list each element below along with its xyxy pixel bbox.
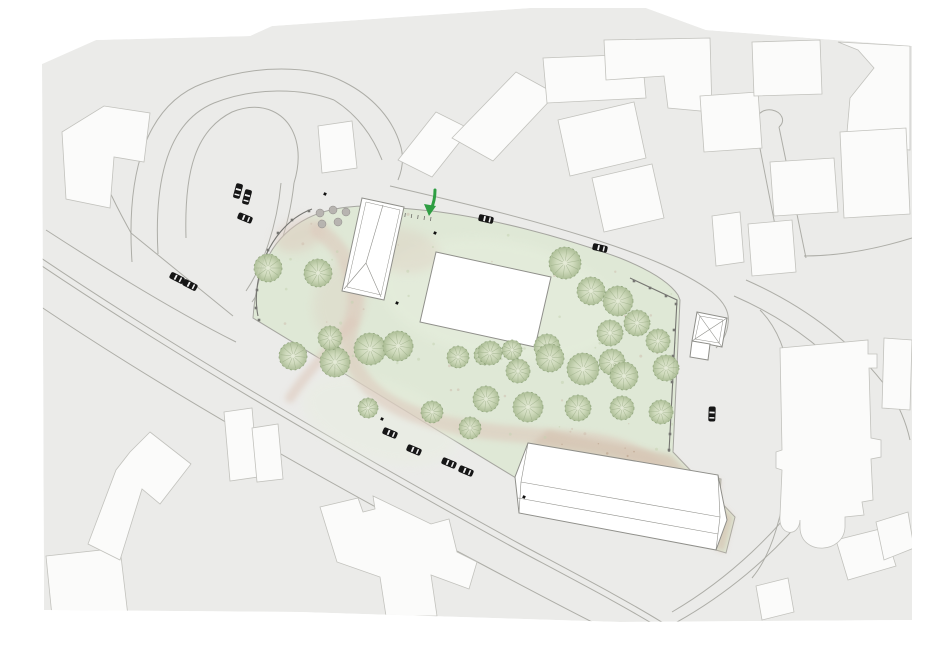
tr-slab-3 [752, 40, 822, 96]
tree-crown [358, 398, 378, 418]
fence-post [255, 307, 258, 310]
ground-speckle [509, 433, 512, 436]
tree [565, 395, 591, 421]
car-body [708, 406, 716, 421]
ground-speckle [450, 389, 452, 391]
tree-crown [478, 341, 502, 365]
pavilion-annex [690, 341, 710, 360]
ground-speckle [558, 316, 561, 319]
ground-speckle [285, 288, 288, 291]
tree [649, 400, 673, 424]
tree-crown [567, 353, 599, 385]
tree-crown [577, 277, 605, 305]
tree-crown [318, 326, 342, 350]
site-plan-drawing [0, 0, 950, 662]
ground-speckle [583, 432, 586, 435]
fence-post [671, 381, 674, 384]
tree-crown [597, 320, 623, 346]
ground-speckle [396, 362, 398, 364]
tree-crown [536, 344, 564, 372]
fence-post [258, 319, 261, 322]
planter-circle [329, 206, 337, 214]
tree [597, 320, 623, 346]
fence-post [267, 249, 270, 252]
gravel-dot [598, 443, 599, 444]
tree-crown [549, 247, 581, 279]
ground-speckle [561, 399, 563, 401]
gravel-dot [606, 452, 609, 455]
fence-post [291, 219, 294, 222]
ground-speckle [417, 358, 420, 361]
tree [447, 346, 469, 368]
planter-circle [318, 220, 326, 228]
tree [653, 355, 679, 381]
ground-speckle [507, 234, 510, 237]
tree [459, 417, 481, 439]
tree [473, 386, 499, 412]
tree [318, 326, 342, 350]
tree-crown [304, 259, 332, 287]
tree-crown [610, 396, 634, 420]
fence-post [675, 303, 678, 306]
ground-speckle [614, 271, 616, 273]
ground-speckle [639, 355, 642, 358]
tree [254, 254, 282, 282]
ground-speckle [544, 436, 547, 439]
tree [610, 362, 638, 390]
ground-speckle [571, 428, 573, 430]
tree [506, 359, 530, 383]
tree [304, 259, 332, 287]
ground-speckle [352, 355, 355, 358]
fence-post [665, 295, 668, 298]
ground-speckle [569, 431, 571, 433]
ground-speckle [310, 223, 312, 225]
tree-crown [502, 340, 522, 360]
ground-speckle [670, 293, 672, 295]
ground-speckle [491, 261, 493, 263]
tree [279, 342, 307, 370]
fence-post [277, 232, 280, 235]
nw-slab [318, 121, 357, 173]
ground-speckle [289, 258, 292, 261]
ground-speckle [339, 322, 342, 325]
ground-speckle [406, 270, 409, 273]
r-small-1 [712, 212, 744, 266]
ground-speckle [398, 244, 399, 245]
tree [478, 341, 502, 365]
site-plan-page [0, 0, 950, 662]
tree [549, 247, 581, 279]
ground-speckle [650, 314, 653, 317]
fence-post [669, 433, 672, 436]
gravel-dot [627, 455, 629, 457]
ground-speckle [331, 259, 333, 261]
tree-crown [279, 342, 307, 370]
r-edge-slab [882, 338, 912, 410]
tree [358, 398, 378, 418]
ground-speckle [559, 426, 561, 428]
tree-crown [473, 386, 499, 412]
fence-post [308, 210, 311, 213]
tree-crown [649, 400, 673, 424]
tree-crown [421, 401, 443, 423]
ground-speckle [363, 308, 365, 310]
ground-speckle [504, 395, 507, 398]
ground-speckle [594, 347, 596, 349]
planter-circle [334, 218, 342, 226]
car [708, 406, 716, 421]
tree [567, 353, 599, 385]
ground-speckle [457, 388, 460, 391]
fence-post [649, 287, 652, 290]
ground-speckle [351, 301, 354, 304]
tree [320, 347, 350, 377]
tree [577, 277, 605, 305]
tree-crown [603, 286, 633, 316]
tree [610, 396, 634, 420]
planter-circle [342, 208, 350, 216]
ground-speckle [432, 246, 434, 248]
planter-circle [316, 209, 324, 217]
ground-speckle [628, 423, 629, 424]
ground-speckle [336, 250, 339, 253]
tree-crown [383, 331, 413, 361]
tree [354, 333, 386, 365]
ground-speckle [432, 343, 435, 346]
ground-speckle [326, 321, 328, 323]
gravel-dot [633, 451, 635, 453]
tree [536, 344, 564, 372]
r-slab-1 [770, 158, 838, 216]
gravel-dot [561, 444, 562, 445]
tr-slab-2 [700, 92, 762, 152]
fence-post [673, 329, 676, 332]
tree [603, 286, 633, 316]
car-windshield [709, 412, 714, 414]
fence-post [633, 280, 636, 283]
ground-speckle [561, 381, 564, 384]
ground-speckle [656, 379, 658, 381]
r-big-2 [840, 128, 910, 218]
l-pair-2 [252, 424, 283, 482]
gravel-dot [625, 448, 626, 449]
tree [624, 310, 650, 336]
tree-crown [653, 355, 679, 381]
r-small-2 [748, 220, 796, 276]
tree-crown [610, 362, 638, 390]
car-rear-window [709, 417, 714, 419]
tree [421, 401, 443, 423]
tree [383, 331, 413, 361]
tree-crown [354, 333, 386, 365]
ground-speckle [407, 213, 410, 216]
tree-crown [624, 310, 650, 336]
ground-speckle [655, 448, 658, 451]
tree-crown [565, 395, 591, 421]
tree [513, 392, 543, 422]
ground-speckle [301, 242, 304, 245]
br-small [756, 578, 794, 620]
fence-post [256, 289, 259, 292]
ground-speckle [407, 295, 409, 297]
ground-speckle [284, 322, 287, 325]
l-pair-1 [224, 408, 258, 481]
tree [502, 340, 522, 360]
tree-crown [646, 329, 670, 353]
ground-speckle [523, 347, 526, 350]
tree [646, 329, 670, 353]
fence-post [668, 449, 671, 452]
